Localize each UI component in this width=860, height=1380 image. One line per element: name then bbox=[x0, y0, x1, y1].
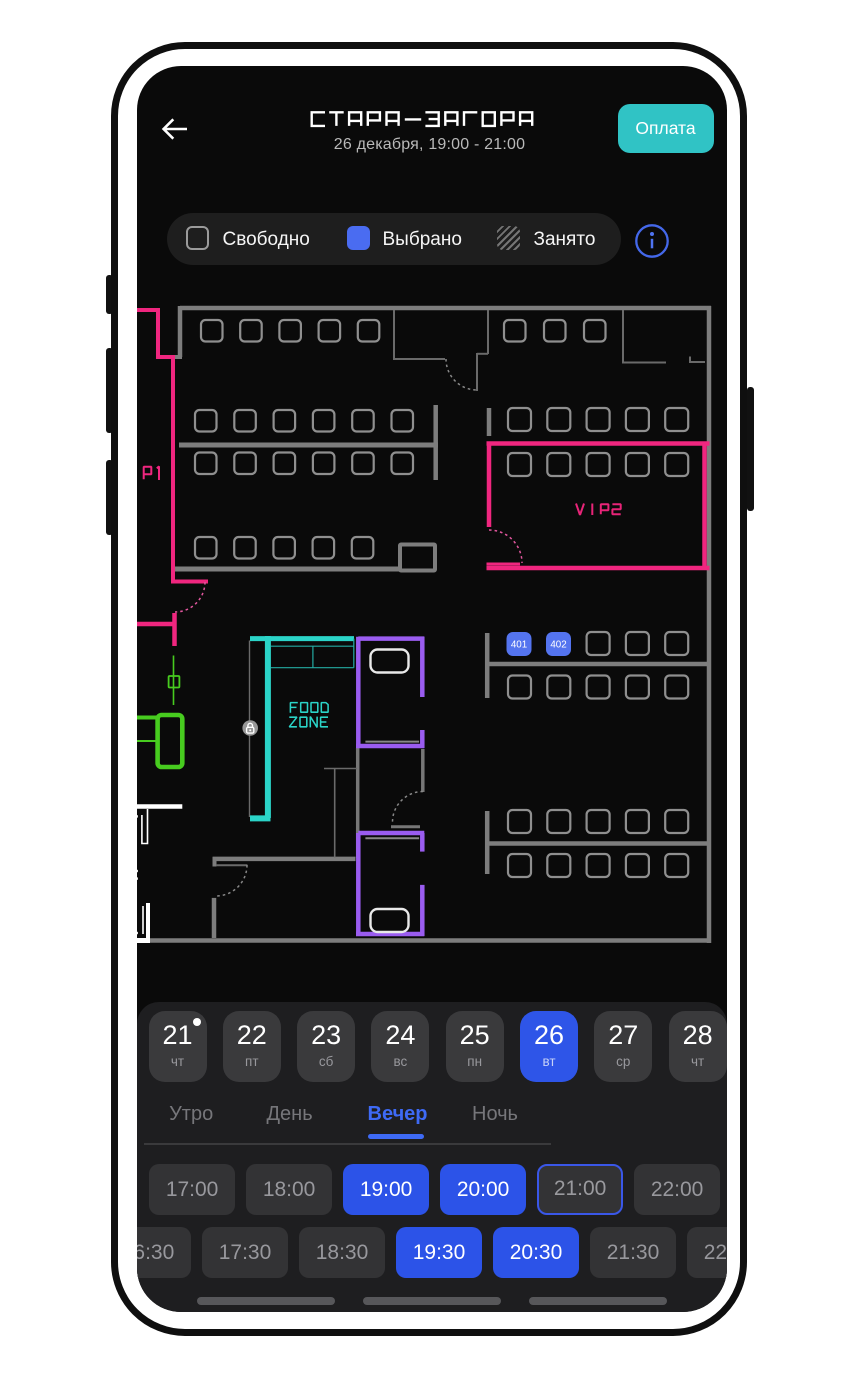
svg-text:402: 402 bbox=[550, 639, 566, 650]
svg-text:401: 401 bbox=[510, 639, 526, 650]
